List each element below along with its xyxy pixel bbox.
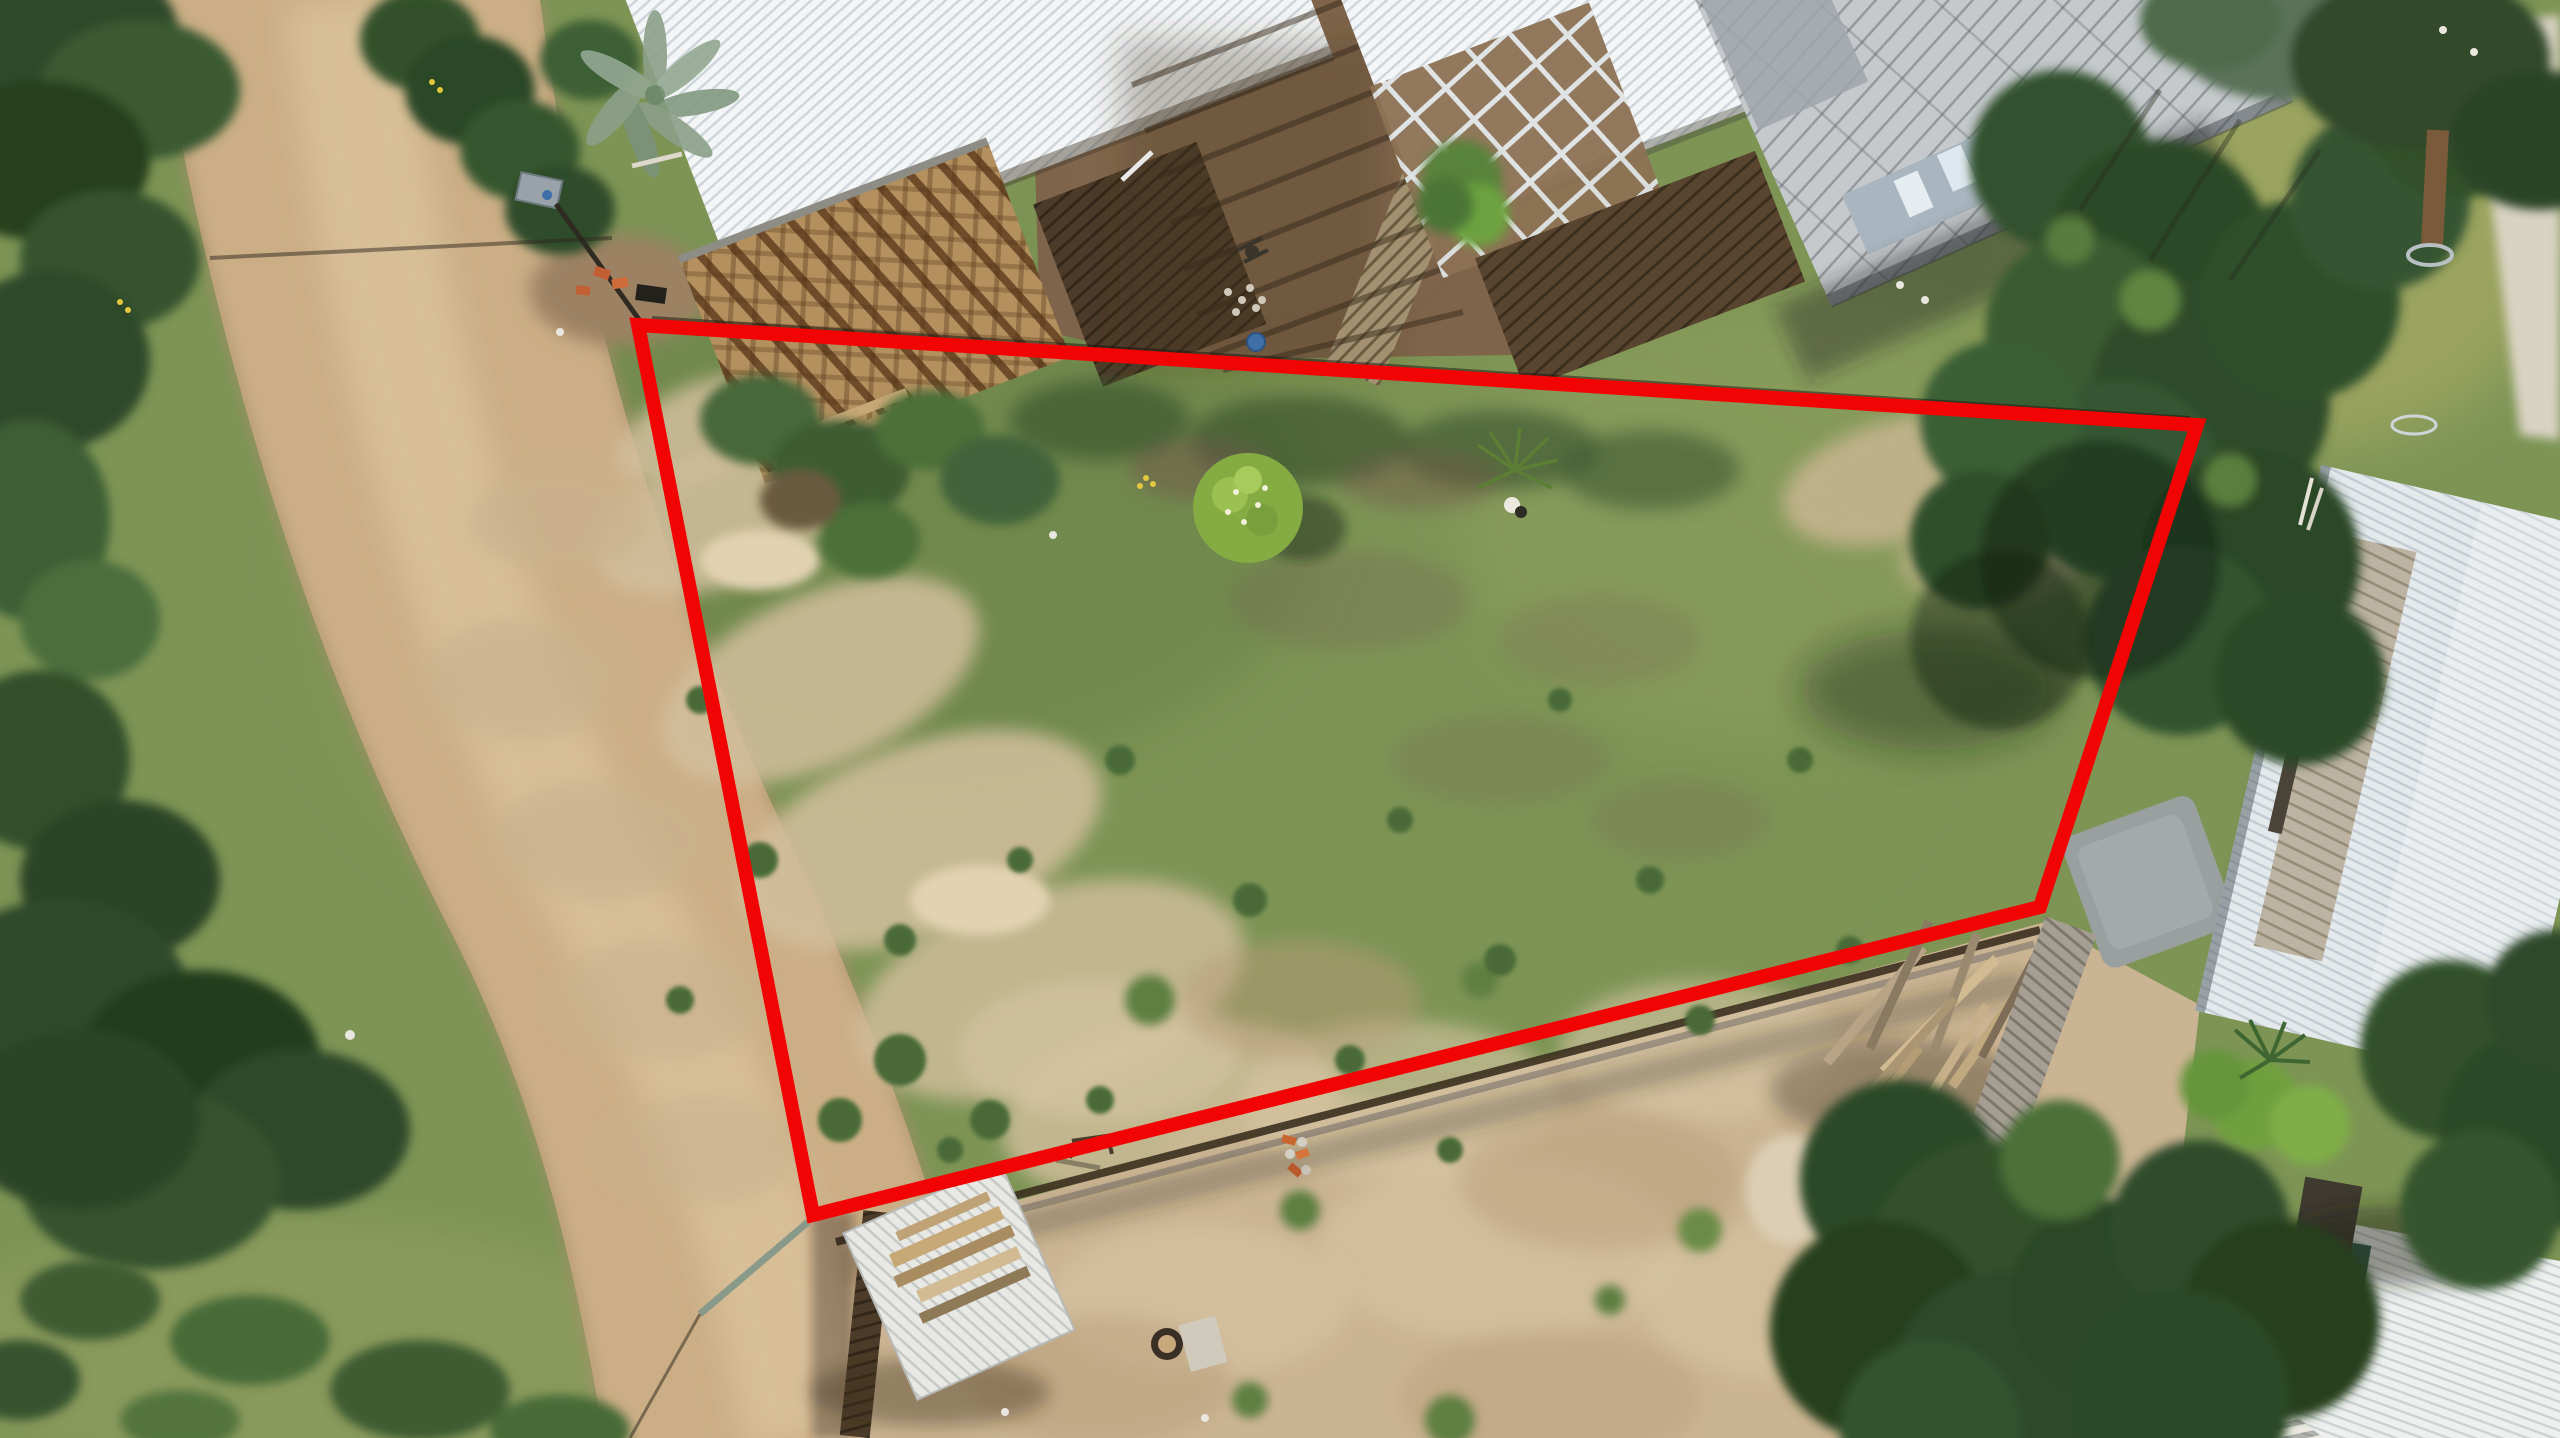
aerial-photo <box>0 0 2560 1438</box>
blue-bucket <box>1247 333 1265 351</box>
